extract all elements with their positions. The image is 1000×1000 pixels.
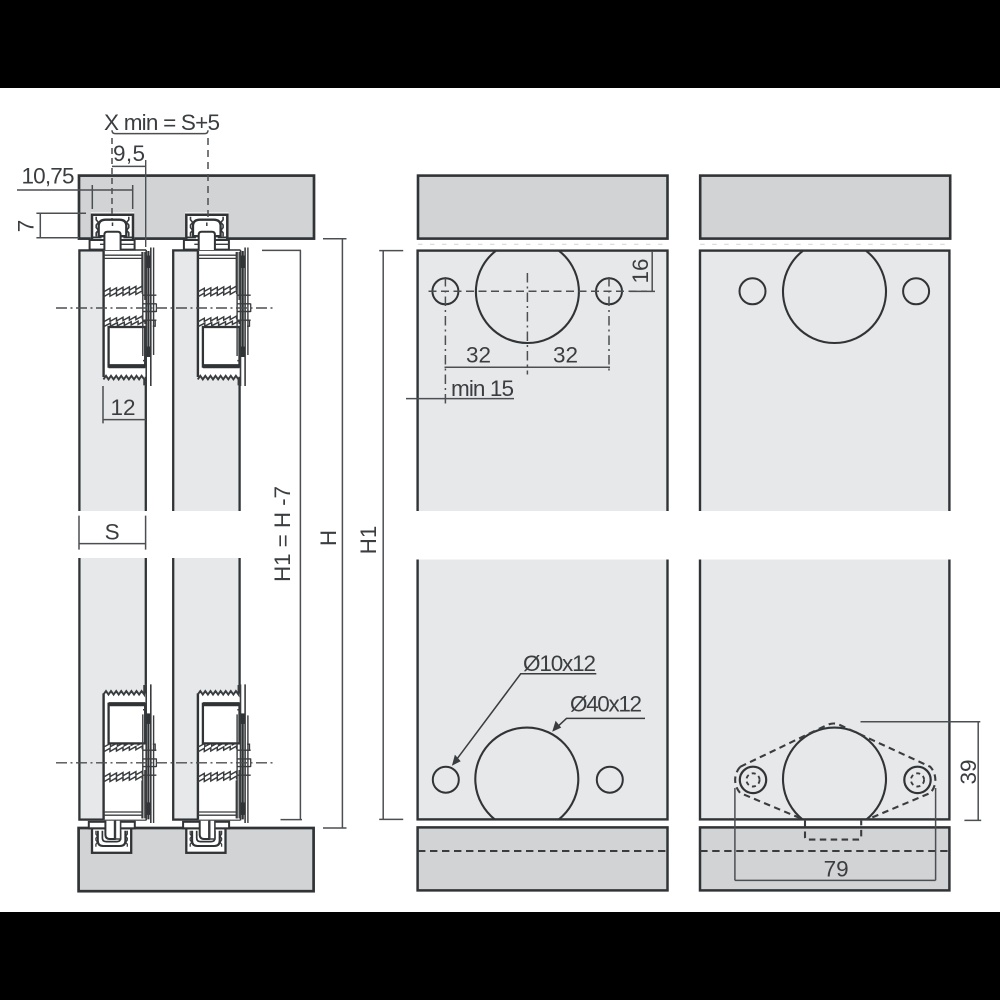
svg-text:H1 = H -7: H1 = H -7 — [270, 486, 295, 582]
svg-text:32: 32 — [553, 343, 578, 368]
svg-text:Ø40x12: Ø40x12 — [570, 692, 642, 717]
svg-text:Ø10x12: Ø10x12 — [523, 651, 596, 676]
svg-text:16: 16 — [628, 258, 653, 283]
svg-text:9,5: 9,5 — [113, 141, 145, 166]
svg-text:39: 39 — [956, 759, 981, 784]
svg-text:H: H — [316, 530, 341, 546]
svg-text:79: 79 — [824, 857, 849, 882]
svg-text:min 15: min 15 — [451, 376, 514, 401]
svg-text:10,75: 10,75 — [22, 164, 75, 189]
svg-text:12: 12 — [111, 395, 136, 420]
svg-text:H1: H1 — [356, 526, 381, 555]
svg-text:X min = S+5: X min = S+5 — [104, 110, 220, 135]
svg-text:7: 7 — [14, 220, 39, 233]
svg-text:S: S — [105, 519, 120, 544]
svg-text:32: 32 — [466, 343, 491, 368]
